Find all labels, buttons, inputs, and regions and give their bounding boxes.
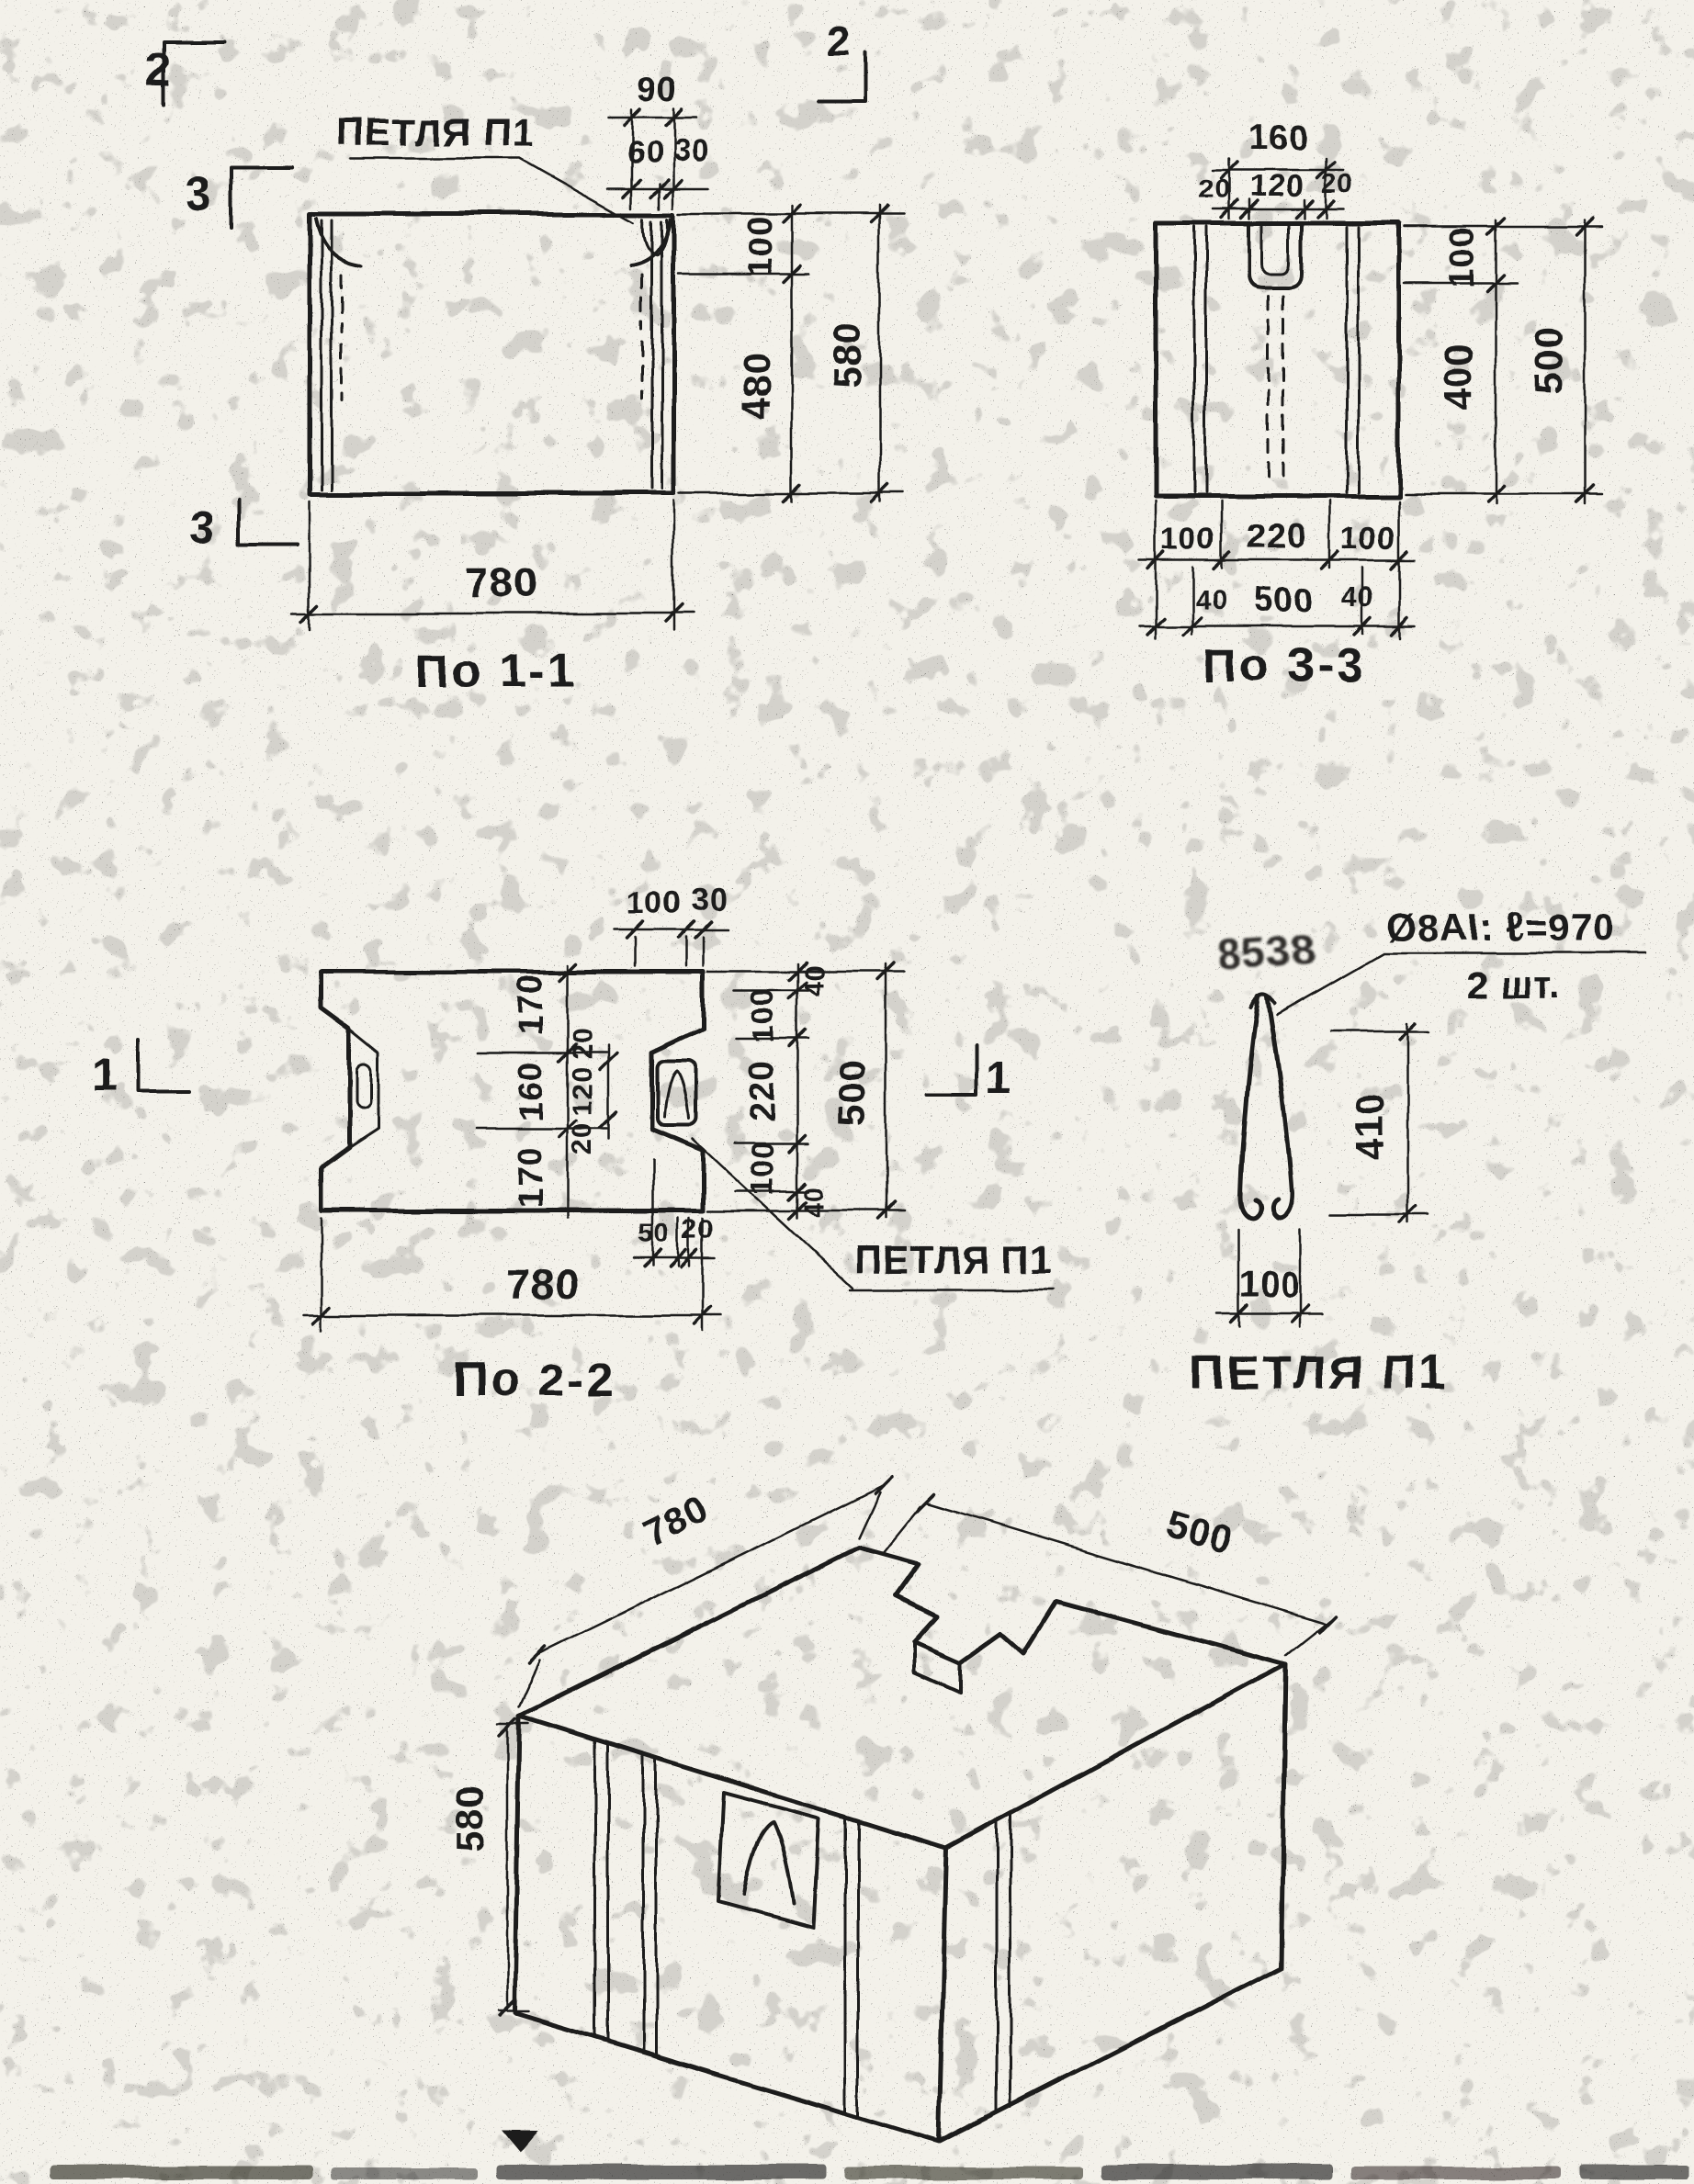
- dim-n120: 120: [568, 1066, 598, 1115]
- section-mark-1-left: 1: [92, 1050, 119, 1101]
- dim-r40-top: 40: [799, 964, 830, 996]
- dim-170-top: 170: [512, 974, 550, 1035]
- dim-580-iso: 580: [448, 1784, 491, 1852]
- dim-r500: 500: [830, 1059, 874, 1126]
- dim-n20-top: 20: [568, 1027, 598, 1059]
- dim-20-right: 20: [1321, 169, 1353, 199]
- dim-100-loop: 100: [1239, 1266, 1300, 1305]
- dim-b500: 500: [1254, 581, 1315, 620]
- loop-callout-label-2-2: ПЕТЛЯ П1: [854, 1238, 1053, 1281]
- scanned-drawing-page: 2 2 3 3 ПЕТЛЯ П1 90 60 30 100 480 580 78…: [0, 0, 1694, 2184]
- section-mark-2-left: 2: [145, 43, 172, 95]
- dim-n20-bottom: 20: [568, 1122, 598, 1154]
- dim-r220: 220: [743, 1061, 782, 1121]
- illegible-stamp: 8538: [1216, 924, 1317, 978]
- dim-30: 30: [672, 134, 709, 169]
- dim-b100-right: 100: [1341, 522, 1396, 557]
- dim-r40-bottom: 40: [799, 1185, 830, 1217]
- dim-b100-left: 100: [1161, 522, 1216, 557]
- section-mark-3-top: 3: [186, 168, 212, 220]
- view-title-1-1: По 1-1: [415, 645, 578, 698]
- dim-780-2-2: 780: [507, 1260, 581, 1308]
- dim-b40-right: 40: [1341, 582, 1373, 613]
- dim-480: 480: [735, 352, 778, 419]
- dim-120: 120: [1249, 169, 1304, 204]
- dim-t30: 30: [691, 882, 728, 917]
- dim-60: 60: [627, 136, 663, 171]
- dim-100-top-3-3: 100: [1443, 227, 1482, 287]
- dim-170-bottom: 170: [512, 1147, 550, 1208]
- drawing-canvas: 2 2 3 3 ПЕТЛЯ П1 90 60 30 100 480 580 78…: [0, 0, 1694, 2184]
- dim-t100: 100: [627, 885, 682, 920]
- loop-detail-title: ПЕТЛЯ П1: [1190, 1346, 1448, 1400]
- dim-b40-left: 40: [1194, 586, 1226, 616]
- dim-400: 400: [1437, 343, 1480, 410]
- dim-410: 410: [1349, 1092, 1392, 1159]
- dim-100-right-1-1: 100: [741, 216, 780, 276]
- dim-b50: 50: [638, 1218, 670, 1248]
- dim-20-left: 20: [1198, 174, 1230, 205]
- dim-b20: 20: [682, 1214, 714, 1244]
- view-title-3-3: По 3-3: [1203, 639, 1366, 692]
- dim-160: 160: [1248, 118, 1309, 157]
- loop-qty-callout: 2 шт.: [1466, 963, 1562, 1006]
- view-title-2-2: По 2-2: [454, 1354, 616, 1407]
- loop-spec-callout: Ø8АI: ℓ=970: [1385, 906, 1615, 949]
- dim-r100-bottom: 100: [746, 1141, 781, 1196]
- dim-b220: 220: [1247, 517, 1307, 556]
- dim-580-1-1: 580: [825, 321, 868, 388]
- dim-r100-top: 100: [746, 988, 781, 1043]
- section-mark-2-right: 2: [827, 17, 852, 64]
- loop-callout-label-1-1: ПЕТЛЯ П1: [336, 110, 535, 153]
- bottom-scan-smudge: [51, 2165, 1688, 2179]
- dim-500-right-3-3: 500: [1527, 326, 1570, 393]
- dim-160-mid: 160: [512, 1061, 550, 1121]
- dim-90: 90: [638, 71, 678, 109]
- section-mark-3-bottom: 3: [189, 502, 216, 554]
- dim-780-1-1: 780: [465, 558, 538, 606]
- section-mark-1-right: 1: [985, 1052, 1011, 1103]
